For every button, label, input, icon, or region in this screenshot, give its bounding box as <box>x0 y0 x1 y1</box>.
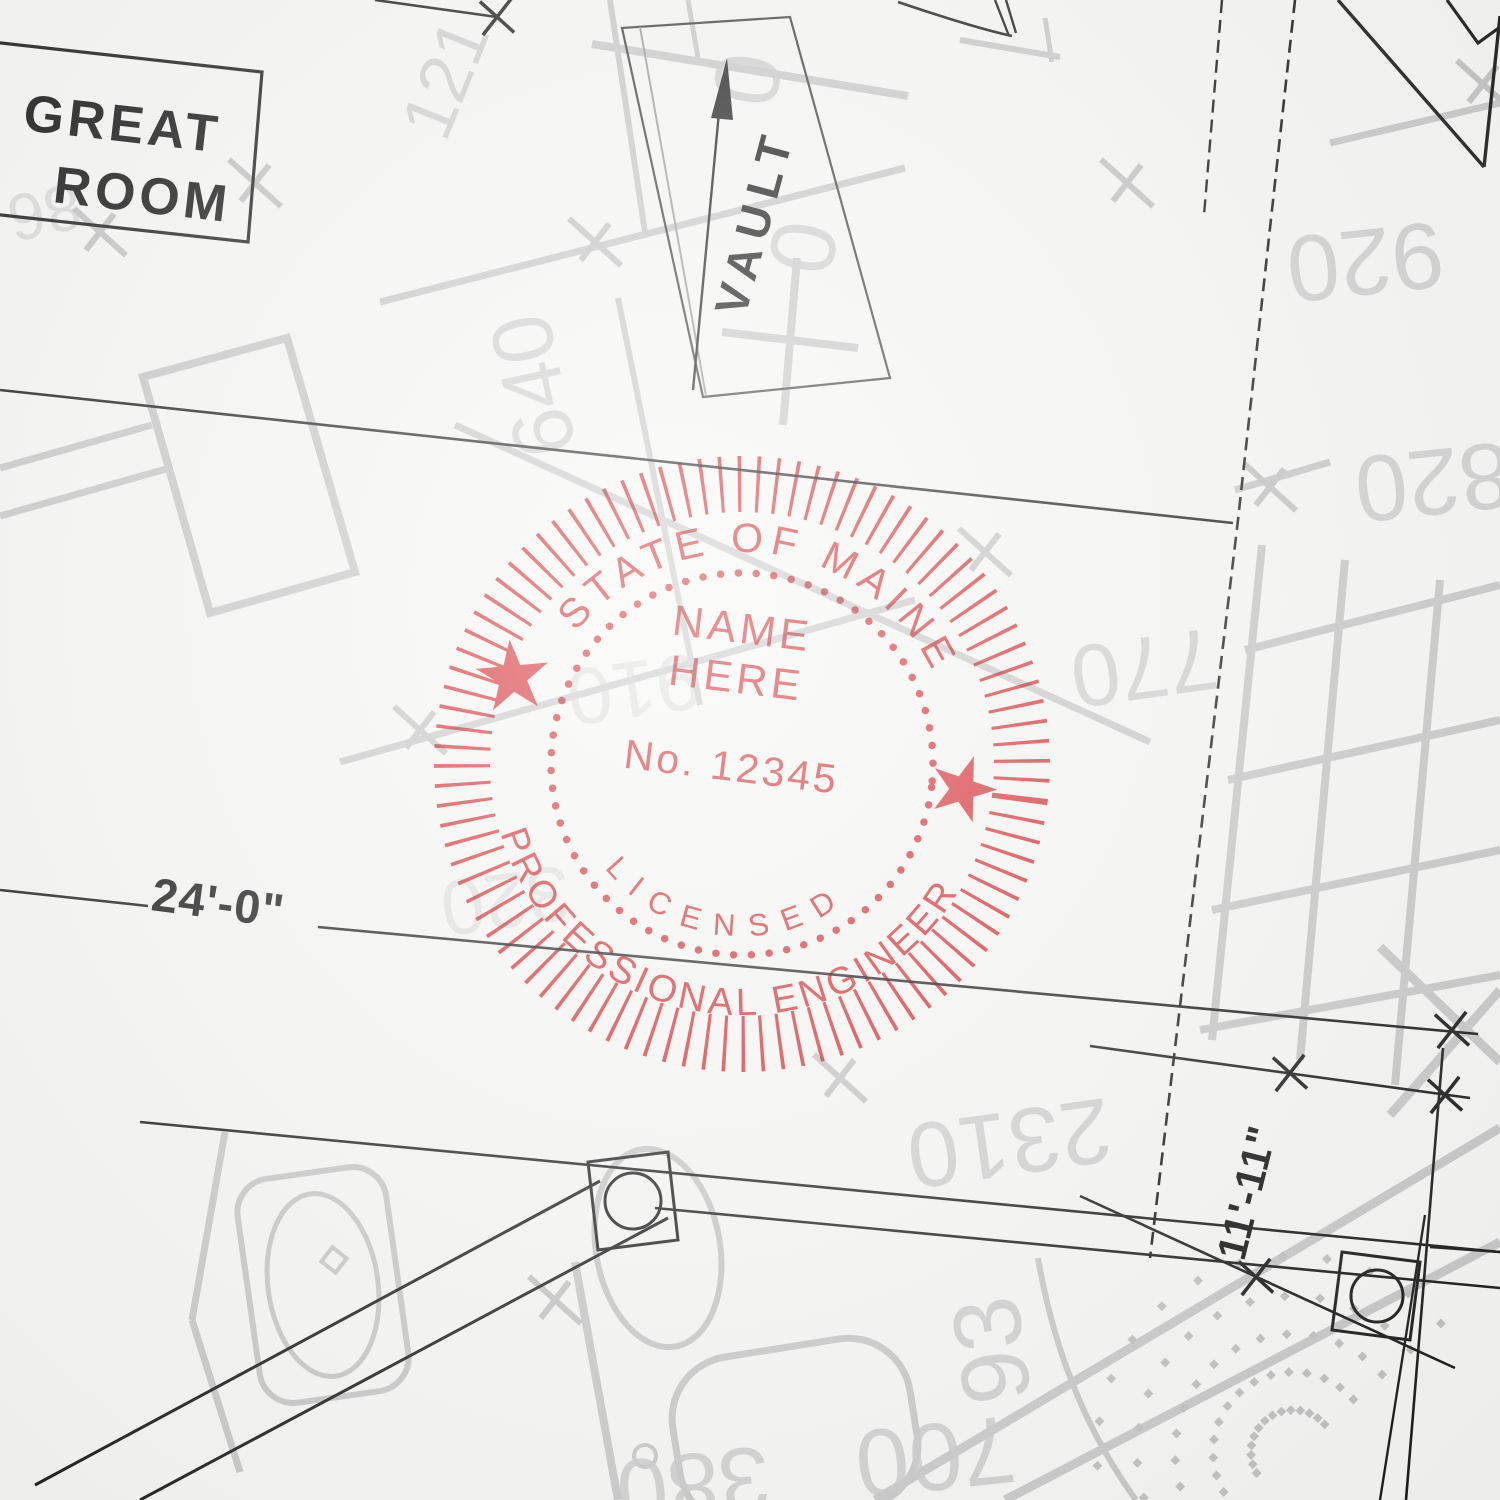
patio-dot <box>1295 1406 1305 1416</box>
patio-dot <box>1252 1468 1262 1478</box>
patio-dot <box>1208 1453 1218 1463</box>
patio-dot <box>1436 1318 1446 1328</box>
ramp-rail-1 <box>35 1181 600 1485</box>
wall-line-dashed-stub <box>1204 0 1222 215</box>
patio-dot <box>1266 1370 1276 1380</box>
ghost-number: 770 <box>1065 609 1224 727</box>
patio-dot <box>1286 1405 1296 1415</box>
door-swing-arc <box>898 2 1012 36</box>
dimension-width-label: 24'-0" <box>149 867 288 937</box>
patio-dot <box>1160 1358 1170 1368</box>
patio-dot <box>1212 1470 1222 1480</box>
patio-dot <box>1282 1329 1292 1339</box>
wall-line-long <box>0 390 1233 523</box>
patio-dot <box>1256 1334 1266 1344</box>
patio-dot <box>1315 1293 1325 1303</box>
bleed-line <box>0 425 152 468</box>
patio-dot <box>1334 1338 1344 1348</box>
patio-dot <box>1320 1419 1330 1429</box>
patio-dot <box>1249 1431 1259 1441</box>
patio-dot <box>1254 1423 1264 1433</box>
bleed-line <box>1228 720 1500 780</box>
patio-dot <box>1313 1413 1323 1423</box>
seal-star-left-icon <box>473 636 551 711</box>
patio-dot <box>1172 1429 1182 1439</box>
patio-dot <box>1247 1440 1257 1450</box>
blueprint-scan: 1210064092082077091032023109370038086 <box>0 0 1500 1500</box>
patio-dot <box>1132 1458 1142 1468</box>
dimension-line-right <box>1090 1046 1470 1098</box>
patio-dot <box>1268 1410 1278 1420</box>
dimension-line-24ft-left <box>0 890 148 906</box>
ghost-number: 820 <box>1350 422 1500 543</box>
fireplace-outline <box>143 338 355 613</box>
patio-dot <box>1348 1395 1358 1405</box>
patio-dot <box>1335 1382 1345 1392</box>
wall-bottom-upper <box>140 1122 1500 1252</box>
wall-bottom-lower <box>655 1208 1500 1288</box>
seal-licensed-text: LICENSED <box>593 847 858 958</box>
tub-fixture <box>233 1163 413 1408</box>
ghost-number: 2310 <box>901 1078 1118 1207</box>
patio-dot <box>1377 1370 1387 1380</box>
ghost-number: 93 <box>931 1290 1052 1411</box>
patio-dot <box>1235 1388 1245 1398</box>
patio-dot <box>1094 1416 1104 1426</box>
patio-dot <box>1093 1461 1103 1471</box>
patio-dot <box>1276 1407 1286 1417</box>
patio-dot <box>1170 1455 1180 1465</box>
bleed-line <box>1212 850 1500 910</box>
patio-dot <box>1304 1408 1314 1418</box>
ghost-number: 380 <box>612 1426 775 1500</box>
bleed-line <box>1330 103 1500 143</box>
patio-dot <box>1212 1311 1222 1321</box>
bleed-line <box>960 40 1060 57</box>
vault-arrow-shaft <box>693 112 719 390</box>
patio-dot <box>1139 1493 1149 1500</box>
blueprint-canvas: 1210064092082077091032023109370038086 <box>0 0 1500 1500</box>
patio-dot <box>1193 1276 1203 1286</box>
patio-dot <box>1249 1377 1259 1387</box>
patio-dot <box>1219 1487 1229 1497</box>
patio-dot <box>1322 1254 1332 1264</box>
patio-dot <box>1209 1435 1219 1445</box>
dimension-tick-mark <box>483 0 511 35</box>
patio-dot <box>1209 1359 1219 1369</box>
bleed-line <box>1245 585 1500 650</box>
patio-dot <box>1284 1367 1294 1377</box>
engineer-seal-stamp: STATE OF MAINE PROFESSIONAL ENGINEER LIC… <box>429 452 1054 1076</box>
ghost-number: 0 <box>692 45 801 113</box>
bleed-line <box>1212 545 1262 1040</box>
ghost-number: 920 <box>1282 202 1449 323</box>
corner-chevron <box>1447 0 1500 43</box>
column-pier-1 <box>605 1173 661 1229</box>
patio-dot <box>1157 1301 1167 1311</box>
patio-dot <box>1357 1352 1367 1362</box>
bleed-line <box>688 0 698 58</box>
patio-dot <box>1214 1417 1224 1427</box>
patio-dot <box>1302 1368 1312 1378</box>
patio-dot <box>1184 1331 1194 1341</box>
door-leaf-2 <box>1006 0 1016 33</box>
ghost-number: 700 <box>850 1395 1020 1500</box>
patio-dot <box>1175 1482 1185 1492</box>
patio-dot <box>1246 1450 1256 1460</box>
patio-dot <box>1191 1379 1201 1389</box>
patio-dot <box>1231 1344 1241 1354</box>
bleed-line <box>0 469 166 516</box>
seal-license-number: No. 12345 <box>621 731 841 803</box>
room-label-line1: GREAT <box>21 84 224 164</box>
bleed-line <box>192 1132 225 1320</box>
dimension-height-label: 11'-11" <box>1208 1121 1286 1265</box>
patio-dot <box>1106 1374 1116 1384</box>
patio-dot <box>1260 1416 1270 1426</box>
patio-dot <box>1223 1401 1233 1411</box>
tub-outline <box>233 1163 413 1408</box>
bleed-line <box>1395 580 1440 1085</box>
patio-dot <box>1143 1389 1153 1399</box>
bleed-line <box>610 0 645 232</box>
gable-line-1 <box>1338 0 1484 167</box>
patio-dot <box>1248 1459 1258 1469</box>
patio-dot <box>1319 1373 1329 1383</box>
patio-dot <box>1245 1297 1255 1307</box>
tub-drain <box>321 1247 346 1272</box>
